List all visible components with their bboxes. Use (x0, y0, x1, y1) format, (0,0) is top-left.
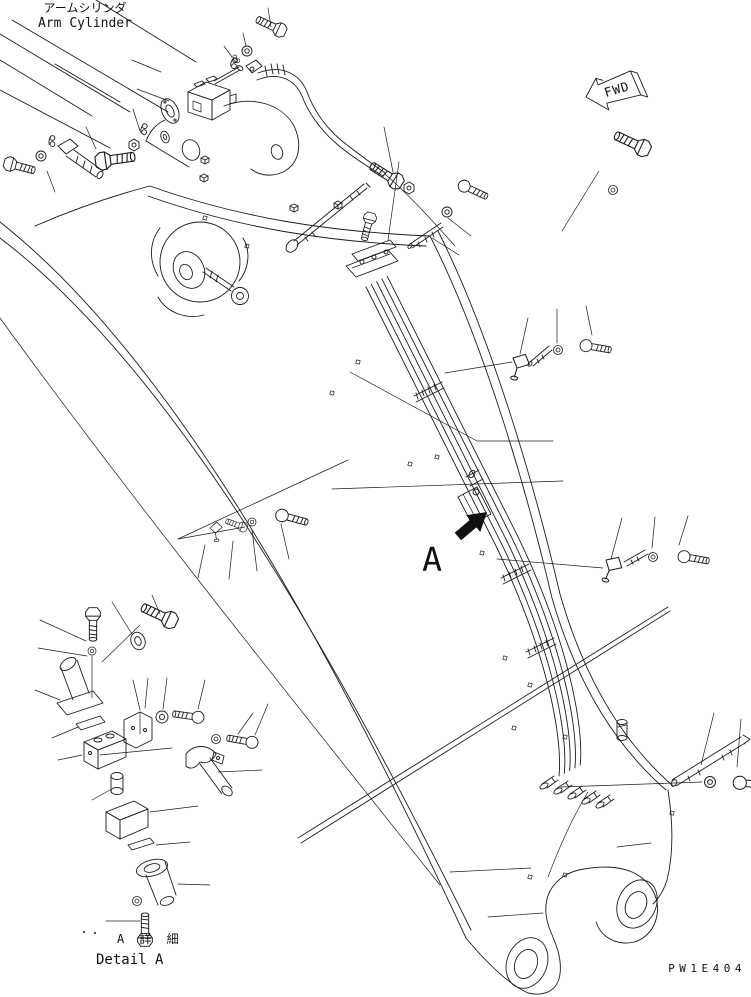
ball-bolt (677, 550, 710, 567)
ball-bolt (456, 178, 490, 202)
detail-title-english: Detail A (96, 952, 164, 968)
ball-bolt (172, 708, 205, 724)
washer (442, 207, 452, 217)
washer (554, 346, 563, 355)
bolt (94, 148, 136, 171)
clamp (600, 554, 624, 585)
bolt (2, 156, 36, 178)
detail-title-japanese: A 詳 細 (117, 931, 183, 946)
clamp-set-1 (509, 339, 612, 382)
bolt (86, 608, 101, 641)
washer (88, 647, 96, 655)
detail-a-view (35, 595, 268, 946)
washer (242, 46, 252, 56)
ball-bolt (226, 732, 259, 749)
ball-bolt (733, 776, 751, 792)
washer (705, 777, 716, 788)
clamp (509, 352, 531, 382)
top-fasteners (229, 13, 455, 246)
boom-outline (0, 186, 673, 995)
head-fasteners (367, 127, 654, 249)
washer (649, 553, 658, 562)
clip (48, 135, 56, 147)
tube-clamp-bands (414, 382, 556, 658)
bolt (358, 211, 378, 242)
fwd-marker: FWD (582, 65, 648, 115)
bolt (138, 599, 180, 630)
bolt (611, 127, 653, 158)
elbow-fitting (581, 791, 600, 805)
hose (258, 70, 385, 173)
elbow-fitting (567, 786, 586, 800)
mid-left-fasteners (209, 508, 310, 543)
washer (212, 735, 221, 744)
title-japanese: アームシリンダ (44, 0, 127, 15)
detail-pointer-arrow-icon (455, 512, 487, 540)
clamp-set-2 (600, 550, 710, 585)
detail-pointer: A (422, 512, 487, 579)
ball-bolt (579, 339, 612, 356)
washer (609, 186, 618, 195)
left-fasteners (2, 123, 170, 180)
parts-diagram: FWD A アームシリンダ Arm Cylinder A 詳 細 Detail … (0, 0, 751, 997)
leader-lines (47, 8, 741, 787)
title-english: Arm Cylinder (38, 16, 132, 31)
nut (404, 182, 414, 194)
parts-diagram-sheet: FWD A アームシリンダ Arm Cylinder A 詳 細 Detail … (0, 0, 751, 997)
ball-bolt (274, 508, 309, 529)
clip (140, 123, 149, 135)
nut (129, 139, 139, 151)
washer (248, 518, 256, 526)
boom-head-assembly (146, 54, 370, 317)
elbow-fitting (553, 781, 572, 795)
tube-end-elbows (539, 720, 627, 810)
elbow-fitting (539, 776, 558, 790)
washer (36, 151, 46, 161)
section-marker: A (422, 540, 442, 579)
drawing-code: PW1E404 (668, 962, 746, 975)
washer (133, 897, 142, 906)
